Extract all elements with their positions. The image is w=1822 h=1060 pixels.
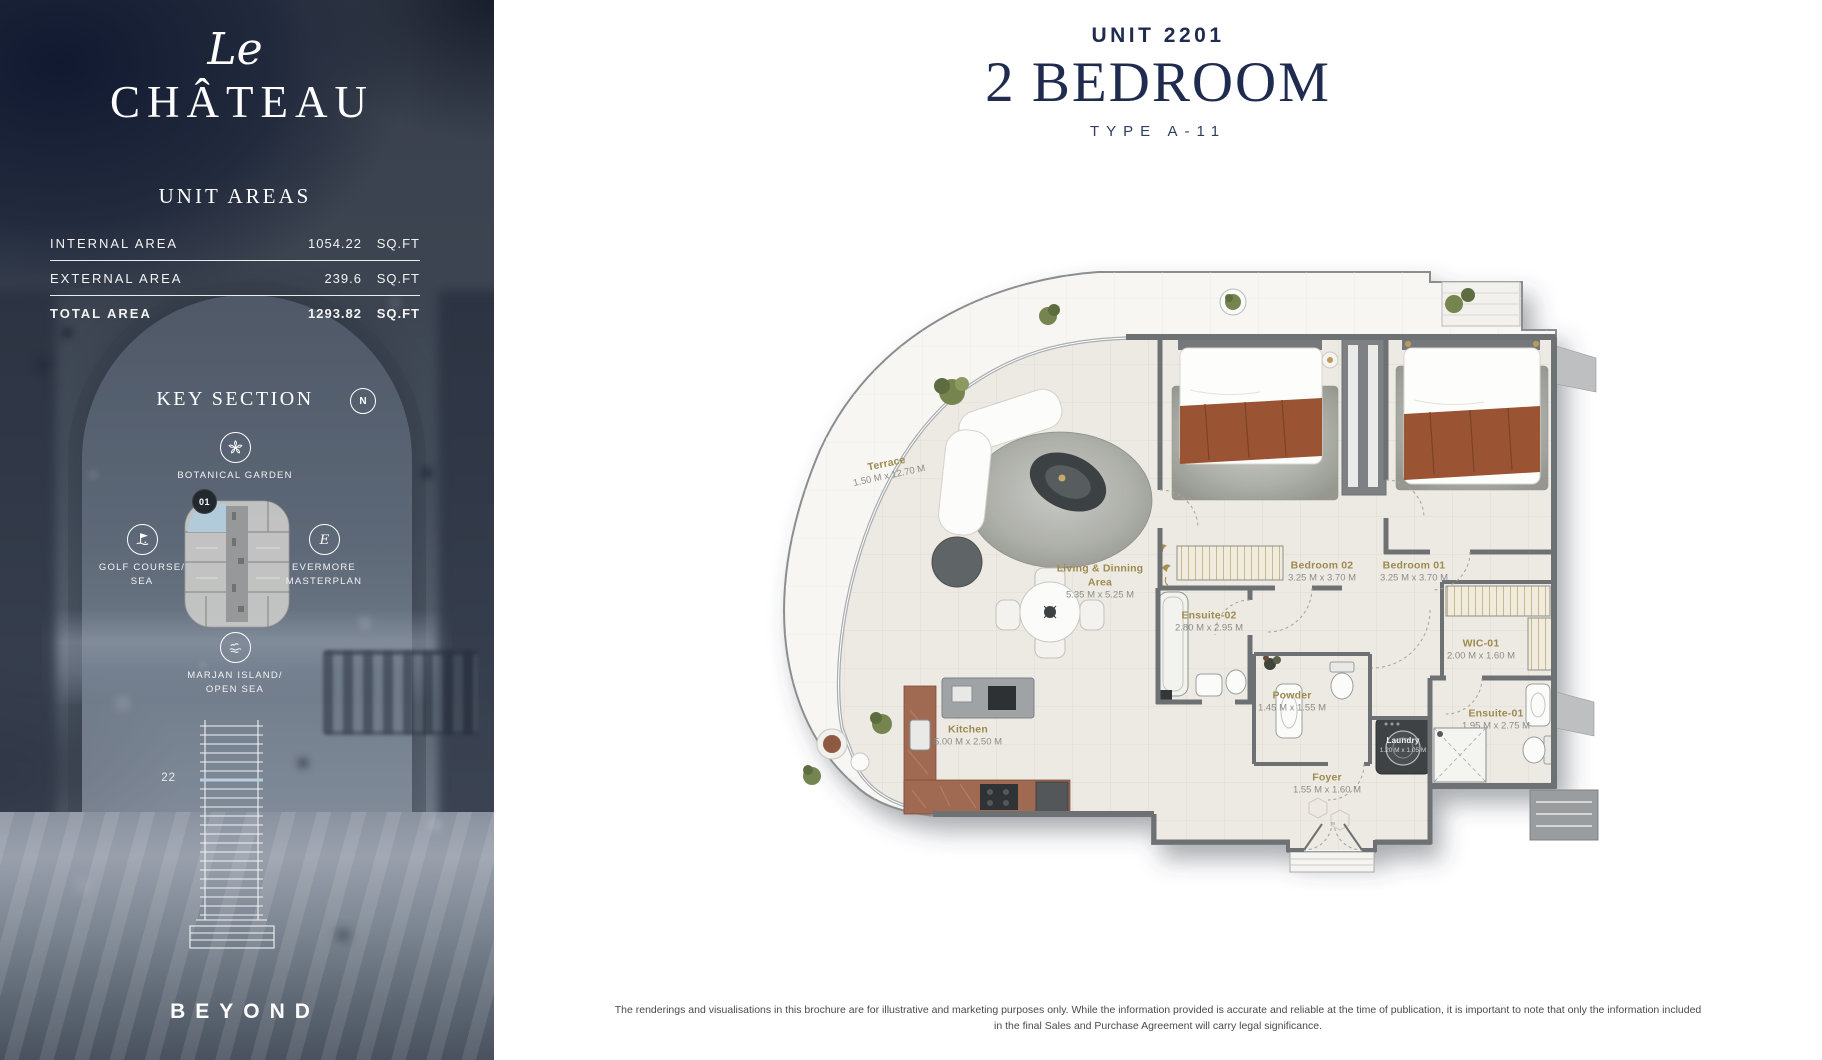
table-row-internal: INTERNAL AREA 1054.22 SQ.FT — [50, 226, 420, 261]
unit-type: TYPE A-11 — [494, 123, 1822, 140]
unit-areas-title: UNIT AREAS — [50, 184, 420, 209]
room-name: Laundry — [1380, 736, 1427, 747]
brand-script-le: Le — [50, 24, 420, 75]
external-area-value: 239.6 — [284, 271, 362, 286]
svg-text:E: E — [318, 533, 329, 548]
room-dims: 5.00 M x 2.50 M — [934, 737, 1002, 750]
brochure-page: Le CHÂTEAU UNIT AREAS INTERNAL AREA 1054… — [0, 0, 1822, 1060]
floor-plan: Terrace 1.50 M x 12.70 M Living & Dinnin… — [730, 250, 1610, 890]
compass-n-icon: N — [350, 388, 376, 414]
room-name: Ensuite-01 — [1462, 707, 1530, 721]
room-name: Ensuite-02 — [1175, 609, 1243, 623]
room-label-living: Living & Dinning Area 5.35 M x 5.25 M — [1048, 561, 1152, 602]
room-label-powder: Powder 1.45 M x 1.55 M — [1258, 689, 1326, 716]
beyond-logo: BEYOND — [50, 1000, 430, 1024]
room-name: WIC-01 — [1447, 637, 1515, 651]
room-dims: 2.00 M x 1.60 M — [1447, 651, 1515, 664]
page-header: UNIT 2201 2 BEDROOM TYPE A-11 — [494, 24, 1822, 140]
unit-number: UNIT 2201 — [494, 24, 1822, 48]
bird-waves-icon — [220, 632, 251, 663]
room-label-wic01: WIC-01 2.00 M x 1.60 M — [1447, 637, 1515, 664]
total-area-value: 1293.82 — [284, 306, 362, 321]
total-area-unit: SQ.FT — [362, 306, 420, 321]
room-name: Bedroom 01 — [1380, 559, 1448, 573]
bedroom01-furniture — [1396, 338, 1548, 490]
room-label-kitchen: Kitchen 5.00 M x 2.50 M — [934, 723, 1002, 750]
bedroom-divider-closet — [1342, 337, 1386, 495]
room-dims: 1.55 M x 1.60 M — [1293, 785, 1361, 798]
disclaimer-line2: in the final Sales and Purchase Agreemen… — [534, 1018, 1782, 1034]
legend-botanical-label: BOTANICAL GARDEN — [50, 469, 420, 483]
room-name: Bedroom 02 — [1288, 559, 1356, 573]
internal-area-label: INTERNAL AREA — [50, 236, 284, 251]
room-label-bedroom01: Bedroom 01 3.25 M x 3.70 M — [1380, 559, 1448, 586]
disclaimer-line1: The renderings and visualisations in thi… — [534, 1002, 1782, 1018]
table-row-external: EXTERNAL AREA 239.6 SQ.FT — [50, 261, 420, 296]
total-area-label: TOTAL AREA — [50, 306, 284, 321]
room-dims: 1.95 M x 2.75 M — [1462, 721, 1530, 734]
legend-golf-label: GOLF COURSE/ SEA — [82, 561, 202, 589]
room-dims: 3.25 M x 3.70 M — [1288, 573, 1356, 586]
sidebar: Le CHÂTEAU UNIT AREAS INTERNAL AREA 1054… — [0, 0, 494, 1060]
golf-flag-icon — [127, 524, 158, 555]
room-label-bedroom02: Bedroom 02 3.25 M x 3.70 M — [1288, 559, 1356, 586]
floor-plan-svg — [730, 250, 1610, 890]
sidebar-content: Le CHÂTEAU UNIT AREAS INTERNAL AREA 1054… — [0, 0, 494, 1060]
flower-icon — [220, 432, 251, 463]
legend-golf-course: GOLF COURSE/ SEA — [82, 524, 202, 589]
room-dims: 5.35 M x 5.25 M — [1048, 590, 1152, 603]
unit-01-badge: 01 — [192, 489, 217, 514]
room-label-ensuite02: Ensuite-02 2.80 M x 2.95 M — [1175, 609, 1243, 636]
room-dims: 2.80 M x 2.95 M — [1175, 623, 1243, 636]
legend-evermore-label: EVERMORE MASTERPLAN — [264, 561, 384, 589]
legend-botanical-garden: BOTANICAL GARDEN — [50, 432, 420, 483]
external-area-unit: SQ.FT — [362, 271, 420, 286]
room-name: Foyer — [1293, 771, 1361, 785]
legend-evermore: E EVERMORE MASTERPLAN — [264, 524, 384, 589]
brand-name: CHÂTEAU — [50, 76, 427, 128]
internal-area-unit: SQ.FT — [362, 236, 420, 251]
room-dims: 1.20 M x 1.05 M — [1380, 747, 1427, 756]
room-label-foyer: Foyer 1.55 M x 1.60 M — [1293, 771, 1361, 798]
external-area-label: EXTERNAL AREA — [50, 271, 284, 286]
legend-marjan-island: MARJAN ISLAND/ OPEN SEA — [125, 632, 345, 697]
room-name: Living & Dinning Area — [1048, 561, 1152, 589]
script-e-icon: E — [309, 524, 340, 555]
room-name: Kitchen — [934, 723, 1002, 737]
table-row-total: TOTAL AREA 1293.82 SQ.FT — [50, 296, 420, 330]
page-title: 2 BEDROOM — [494, 50, 1822, 115]
floor-number-label: 22 — [142, 772, 176, 784]
legend-marjan-label: MARJAN ISLAND/ OPEN SEA — [125, 669, 345, 697]
internal-area-value: 1054.22 — [284, 236, 362, 251]
building-elevation-diagram — [188, 714, 276, 959]
room-dims: 3.25 M x 3.70 M — [1380, 573, 1448, 586]
unit-areas-table: INTERNAL AREA 1054.22 SQ.FT EXTERNAL ARE… — [50, 226, 420, 330]
room-name: Powder — [1258, 689, 1326, 703]
room-dims: 1.45 M x 1.55 M — [1258, 703, 1326, 716]
room-label-ensuite01: Ensuite-01 1.95 M x 2.75 M — [1462, 707, 1530, 734]
room-label-laundry: Laundry 1.20 M x 1.05 M — [1380, 736, 1427, 756]
disclaimer: The renderings and visualisations in thi… — [534, 1002, 1782, 1035]
